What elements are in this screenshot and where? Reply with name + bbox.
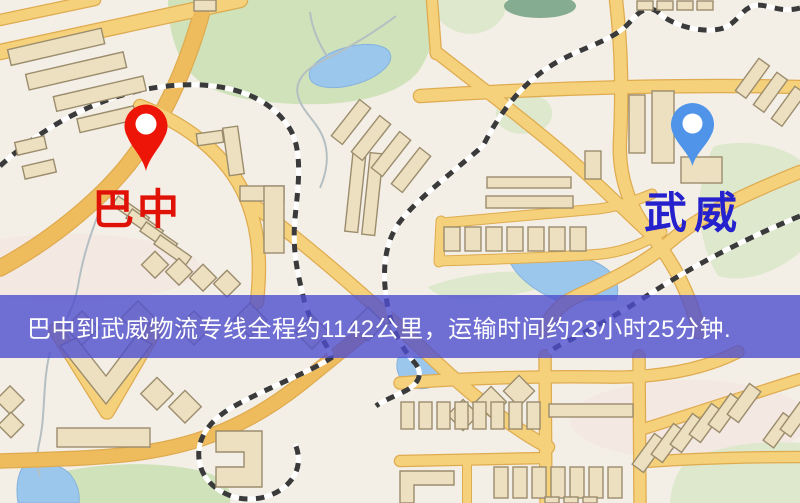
map-canvas[interactable] — [0, 0, 800, 503]
route-info-text: 巴中到武威物流专线全程约1142公里，运输时间约23小时25分钟. — [0, 309, 731, 344]
origin-city-label: 巴中 — [92, 176, 182, 237]
map-pin-icon — [669, 101, 716, 167]
lake — [17, 463, 79, 503]
destination-marker[interactable] — [669, 101, 716, 172]
logistics-route-map: 巴中到武威物流专线全程约1142公里，运输时间约23小时25分钟. 巴中 武威 — [0, 0, 800, 503]
destination-city-label: 武威 — [644, 179, 744, 241]
origin-marker[interactable] — [123, 100, 169, 177]
route-info-banner: 巴中到武威物流专线全程约1142公里，运输时间约23小时25分钟. — [0, 295, 800, 358]
map-pin-icon — [123, 100, 169, 172]
